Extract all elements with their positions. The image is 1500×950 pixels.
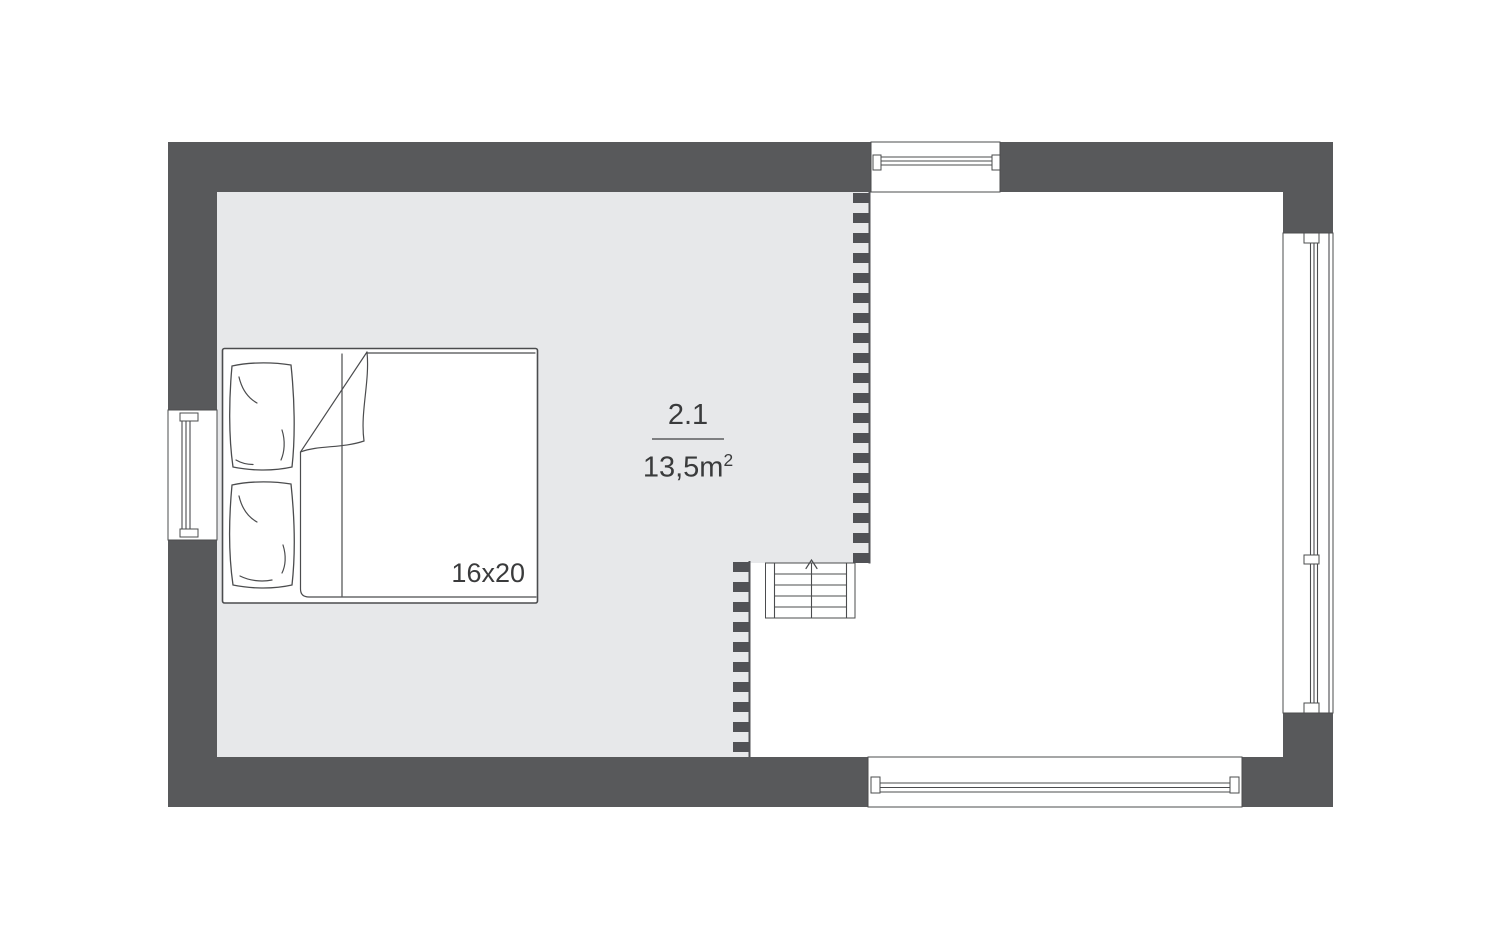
window-bottom xyxy=(868,757,1242,807)
pillow-top xyxy=(230,363,294,470)
stairs xyxy=(766,560,856,618)
wall-top-left xyxy=(168,142,871,192)
wall-left-upper xyxy=(168,192,217,410)
room-label: 2.1 13,5m2 xyxy=(608,400,768,484)
wall-left-lower xyxy=(168,540,217,758)
room-area-exponent: 2 xyxy=(723,450,733,470)
wall-top-right-corner xyxy=(1283,142,1333,233)
window-right xyxy=(1283,233,1333,713)
wall-right-lower xyxy=(1283,713,1333,758)
bed-size-label: 16x20 xyxy=(375,559,525,587)
window-top xyxy=(871,142,1000,192)
room-area: 13,5m2 xyxy=(608,445,768,484)
floor-plan-page: 2.1 13,5m2 16x20 xyxy=(0,0,1500,950)
pillow-bottom xyxy=(230,482,294,588)
window-left xyxy=(168,410,217,540)
wall-bottom-right-corner xyxy=(1242,757,1333,807)
wall-bottom-left xyxy=(168,757,868,807)
room-number: 2.1 xyxy=(608,400,768,431)
wall-top-right xyxy=(1000,142,1283,192)
room-label-divider xyxy=(652,438,724,440)
room-area-value: 13,5m xyxy=(643,452,724,484)
